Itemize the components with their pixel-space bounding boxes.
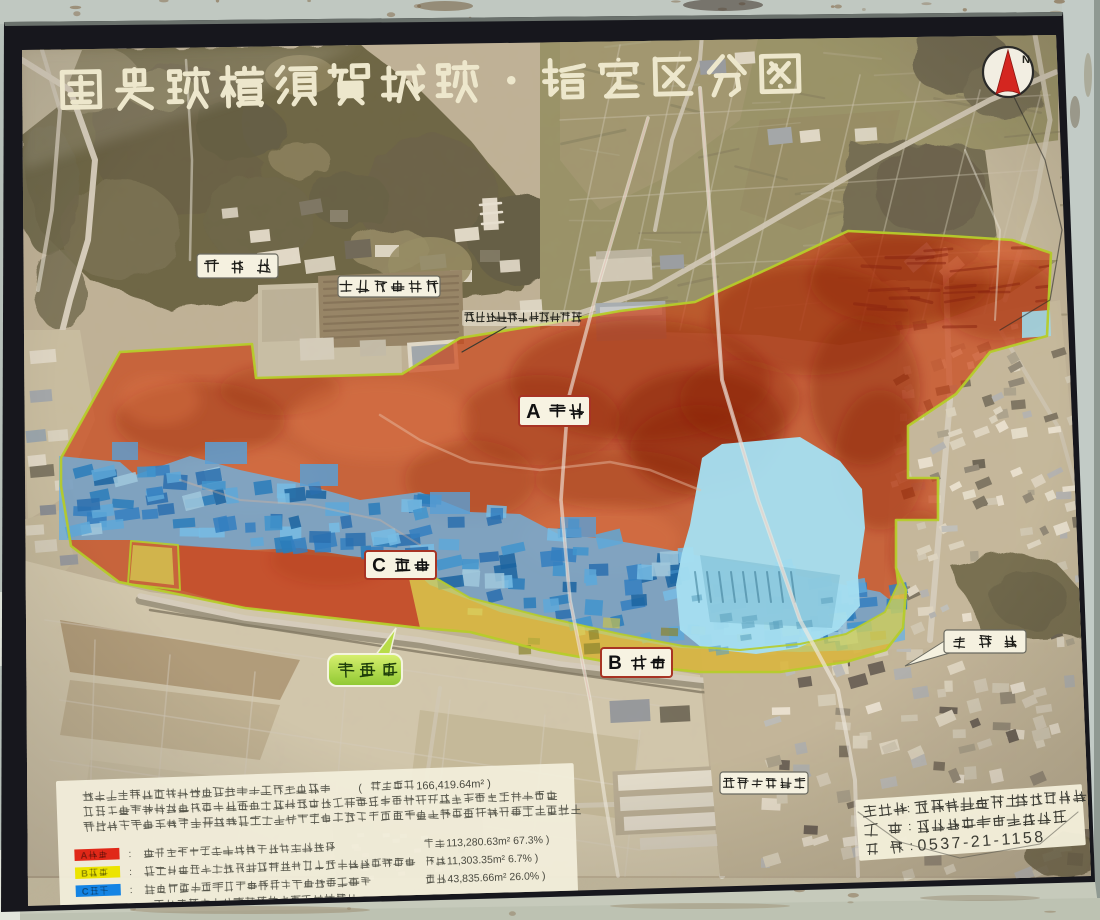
svg-text::: : <box>129 867 132 878</box>
svg-text:C: C <box>82 887 89 898</box>
svg-text:N: N <box>1022 54 1030 66</box>
svg-text:A: A <box>526 401 540 423</box>
svg-text:C: C <box>372 555 386 576</box>
svg-text:B: B <box>608 653 622 674</box>
svg-text:A: A <box>80 851 87 862</box>
svg-text::: : <box>130 885 133 896</box>
svg-text::: : <box>128 849 131 860</box>
svg-text:B: B <box>81 869 88 880</box>
